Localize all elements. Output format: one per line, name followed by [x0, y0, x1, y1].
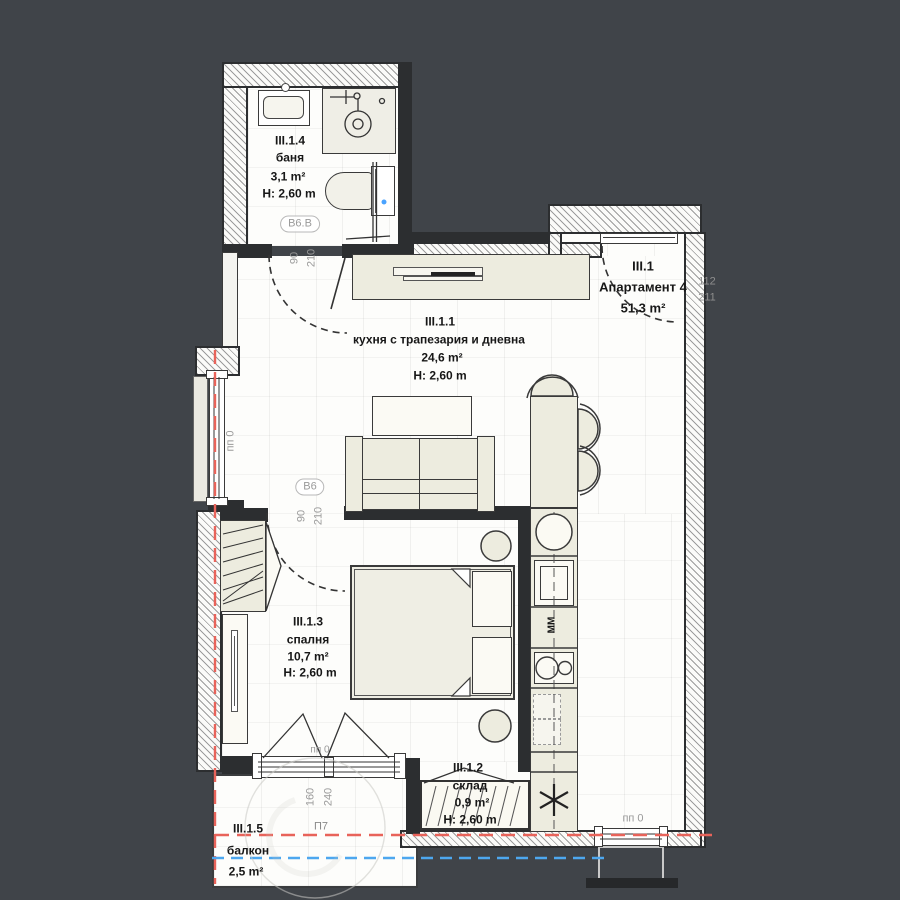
- storage-area: 0,9 m²: [455, 797, 490, 810]
- bedroom-door-height: 210: [313, 507, 326, 525]
- sofa-arm-right: [477, 436, 495, 512]
- bathroom-left-wall: [222, 86, 248, 252]
- bath-sink: [258, 90, 310, 126]
- apartment-id: III.1: [632, 260, 654, 273]
- apartment-area: 51,3 m²: [621, 302, 666, 315]
- microwave-label: ММ: [546, 617, 559, 634]
- left-window-cap-bottom: [206, 497, 228, 506]
- left-window-cap-top: [206, 370, 228, 379]
- balcony-window-cap-left: [252, 753, 262, 779]
- storage-height: H: 2,60 m: [443, 814, 496, 827]
- apartment-name: Апартамент 4: [599, 281, 687, 294]
- bedroom-height: H: 2,60 m: [283, 667, 336, 680]
- storage-left-wall: [406, 758, 420, 834]
- bedroom-name: спалня: [287, 634, 329, 647]
- bedroom-area: 10,7 m²: [287, 651, 328, 664]
- bathroom-name: баня: [276, 152, 304, 165]
- bedroom-door-tag: B6: [295, 479, 324, 496]
- bathroom-door-width: 90: [289, 252, 302, 264]
- left-wall-upper: [222, 252, 238, 348]
- bottom-window-ledge: [598, 846, 664, 880]
- cabinet-item-dark: [431, 272, 475, 276]
- sofa-cushion-1: [362, 438, 421, 480]
- sofa-seat-1b: [362, 493, 421, 510]
- oven-inner: [540, 566, 568, 600]
- coffee-table: [372, 396, 472, 436]
- balcony-door-height: 240: [323, 788, 336, 806]
- bathroom-height: H: 2,60 m: [262, 188, 315, 201]
- entrance-door-leaf-line: [603, 237, 675, 238]
- dining-table: [530, 396, 578, 508]
- bottom-window-label: пп 0: [622, 813, 643, 826]
- living-area: 24,6 m²: [421, 352, 462, 365]
- living-id: III.1.1: [425, 316, 455, 329]
- balcony-name: балкон: [227, 845, 269, 858]
- cistern-line: [375, 169, 376, 213]
- left-window-label: пп 0: [225, 430, 238, 451]
- floor-plan: III.1.4 баня 3,1 m² H: 2,60 m B6.B 90 21…: [0, 0, 900, 900]
- bathroom-door-tag: B6.B: [280, 216, 320, 233]
- balcony-window-cap-right: [394, 753, 406, 779]
- toilet: [325, 172, 373, 210]
- cooktop: [534, 652, 574, 684]
- right-exterior-wall: [684, 232, 706, 848]
- balcony-door-tag: П7: [314, 821, 328, 834]
- bathroom-area: 3,1 m²: [271, 171, 306, 184]
- hall-cabinet: [352, 254, 590, 300]
- bedroom-right-wall: [518, 506, 530, 772]
- bathroom-top-wall: [222, 62, 412, 88]
- balcony-window-mullion: [324, 757, 334, 777]
- storage-id: III.1.2: [453, 762, 483, 775]
- entrance-door-leaf: [600, 233, 678, 244]
- entrance-door-width: 112: [698, 276, 716, 289]
- fridge-dashed-top: [533, 694, 561, 719]
- sofa-arm-left: [345, 436, 363, 512]
- bathroom-door-height: 210: [306, 249, 319, 267]
- dresser-handle: [231, 630, 238, 712]
- wardrobe: [220, 520, 266, 612]
- bedroom-door-width: 90: [296, 510, 309, 522]
- sofa-cushion-2: [419, 438, 478, 480]
- entry-top-wall: [548, 204, 702, 234]
- storage-name: склад: [453, 780, 488, 793]
- balcony-door-width: 160: [305, 788, 318, 806]
- left-window: [209, 374, 225, 502]
- bedroom-left-wall: [196, 510, 222, 772]
- shower: [322, 88, 396, 154]
- living-name: кухня с трапезария и дневна: [353, 334, 525, 347]
- pillow-bottom: [472, 637, 512, 694]
- bathroom-id: III.1.4: [275, 135, 305, 148]
- bath-faucet: [281, 83, 290, 92]
- sofa-seat-1a: [362, 479, 421, 494]
- bottom-window: [598, 828, 664, 846]
- balcony-area: 2,5 m²: [229, 866, 264, 879]
- fridge-dashed-bottom: [533, 719, 561, 745]
- toilet-cistern: [371, 166, 395, 216]
- left-window-ledge: [193, 376, 208, 502]
- bottom-window-cap-left: [594, 826, 603, 847]
- cabinet-item-2: [403, 276, 483, 281]
- sofa-seat-2b: [419, 493, 478, 510]
- pillow-top: [472, 571, 512, 627]
- bottom-ledge-bar: [586, 878, 678, 888]
- bath-sink-basin: [263, 96, 304, 119]
- sofa-seat-2a: [419, 479, 478, 494]
- living-height: H: 2,60 m: [413, 370, 466, 383]
- balcony-id: III.1.5: [233, 823, 263, 836]
- bathroom-right-wall: [398, 62, 412, 252]
- balcony-window-label: пп 0: [310, 744, 329, 757]
- entrance-door-height: 211: [698, 292, 716, 305]
- bottom-window-cap-right: [659, 826, 668, 847]
- bedroom-id: III.1.3: [293, 616, 323, 629]
